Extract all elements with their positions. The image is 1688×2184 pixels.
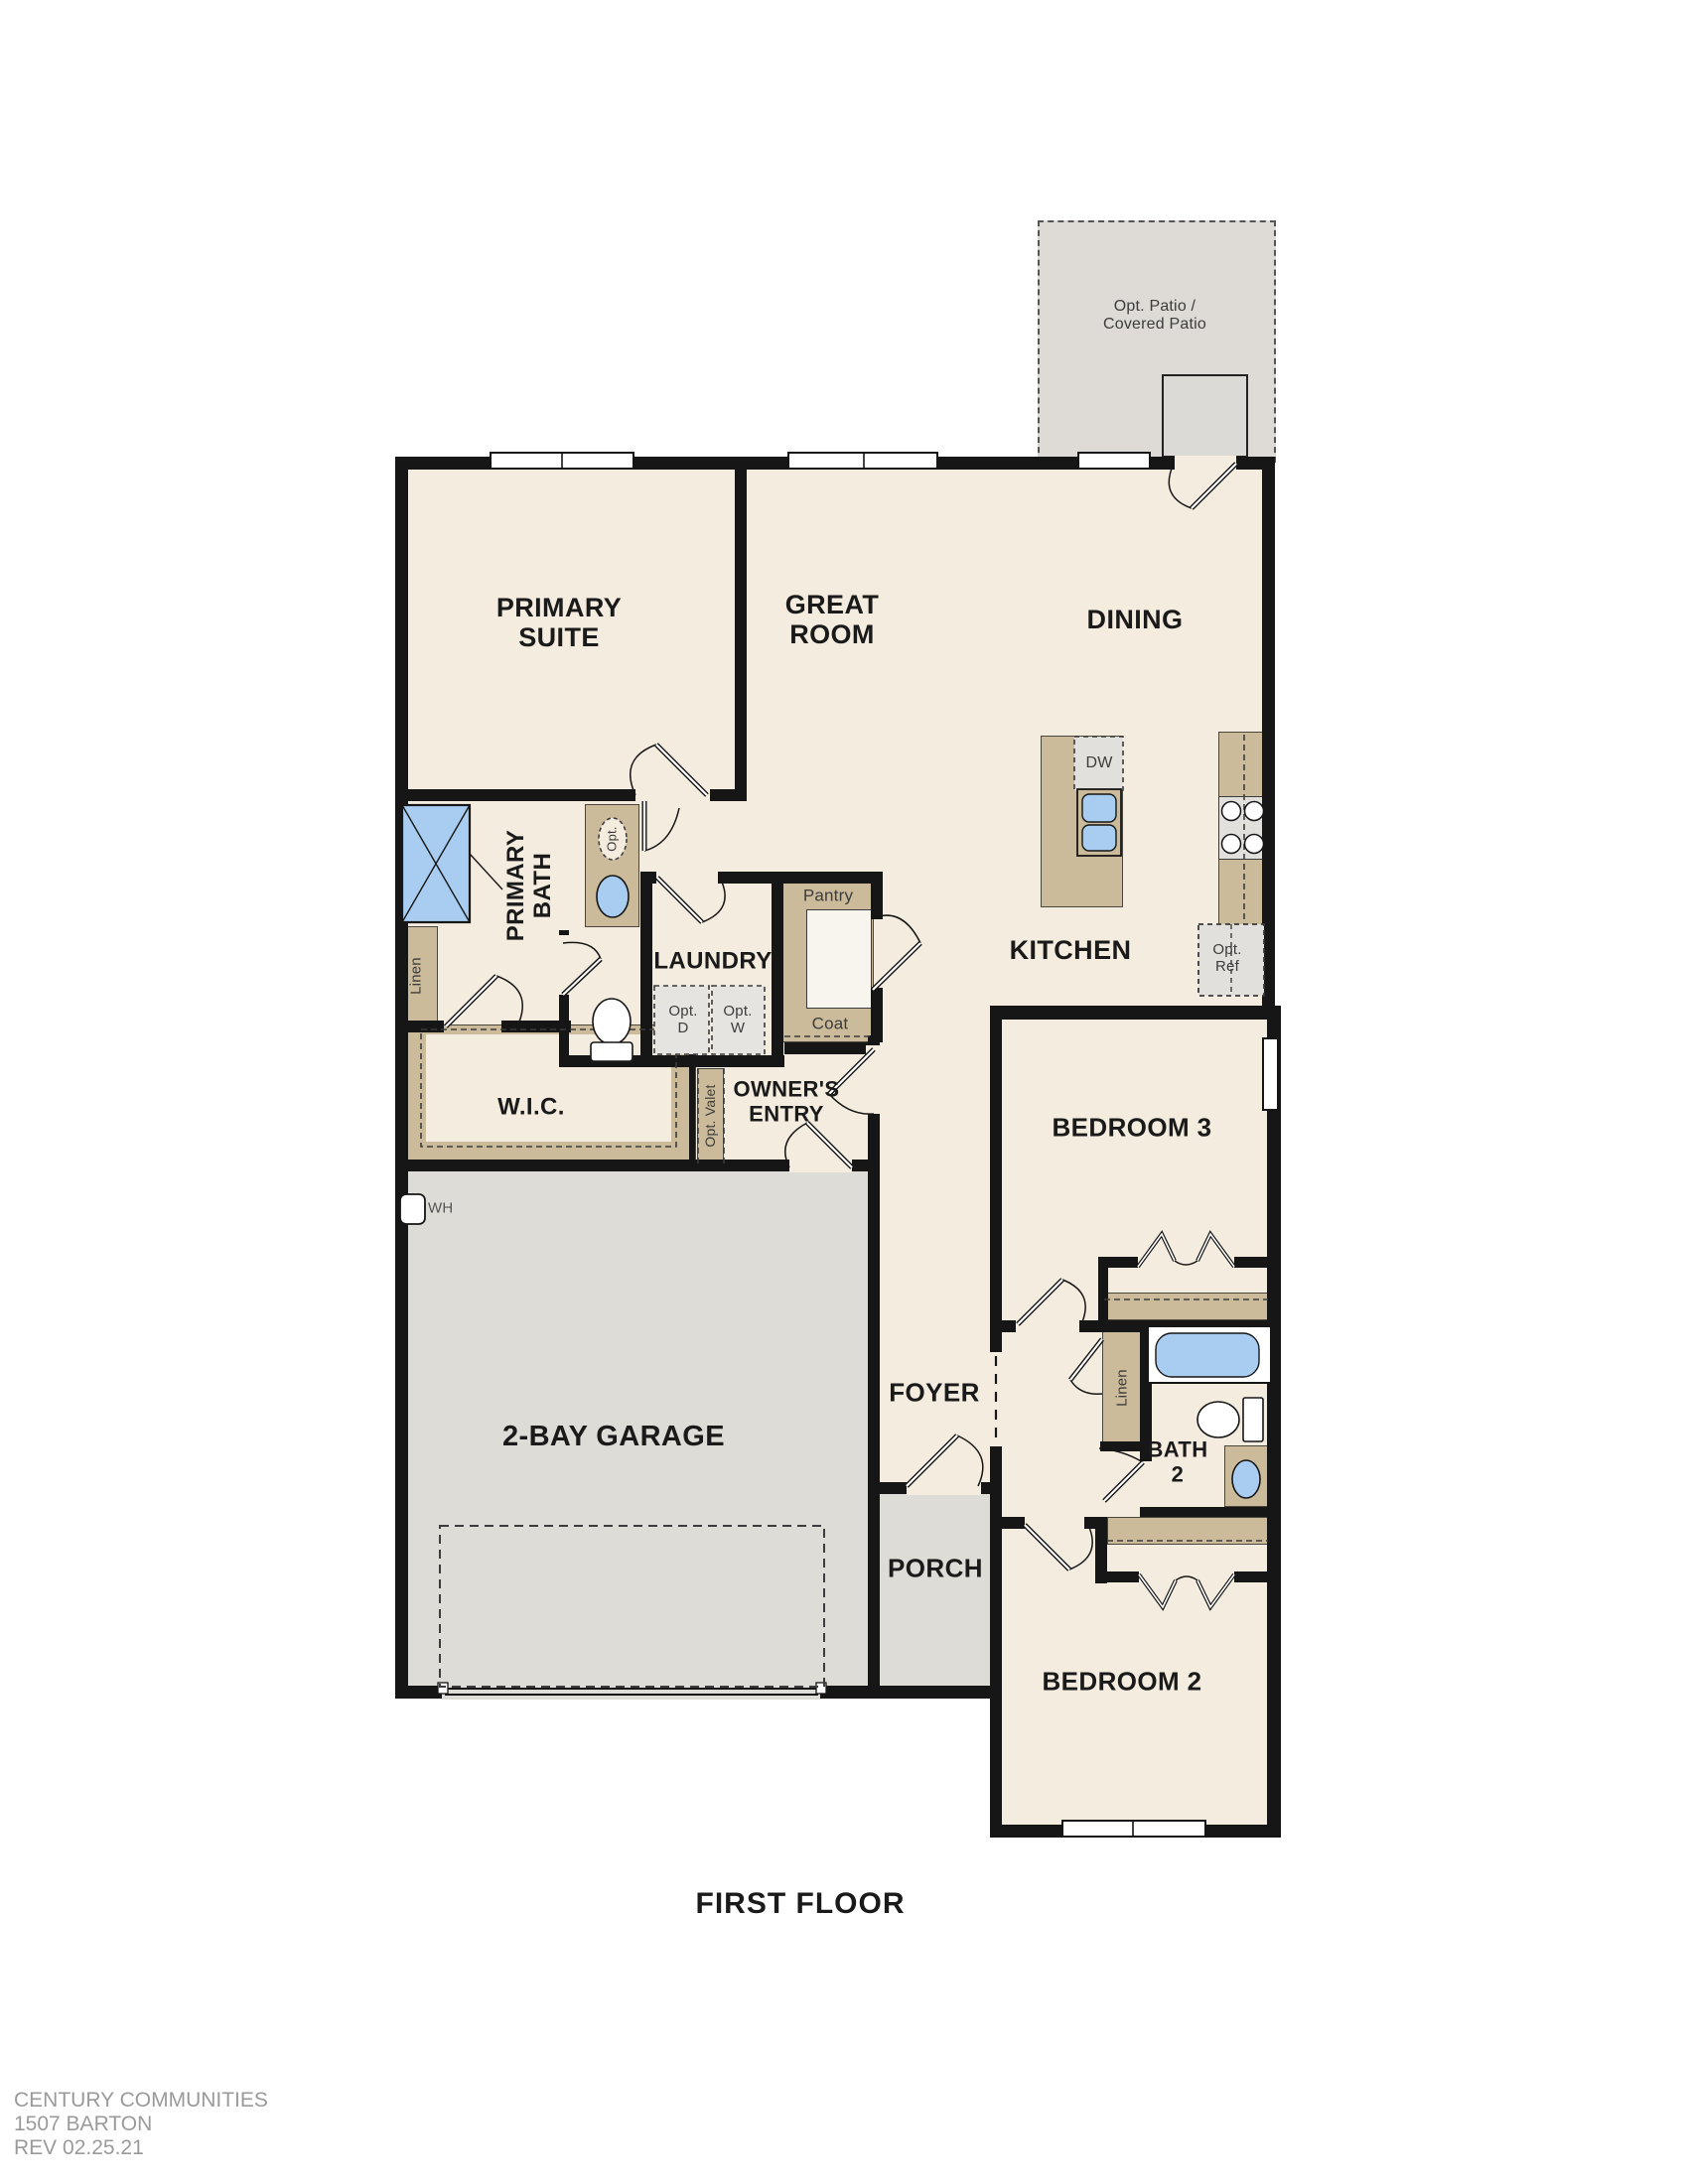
- room-label-great-room: GREAT ROOM: [773, 590, 892, 649]
- door-pantry: [873, 915, 920, 990]
- room-label-porch: PORCH: [846, 1554, 1025, 1582]
- water-heater-label: WH: [428, 1201, 468, 1218]
- footer-company: CENTURY COMMUNITIES: [14, 2089, 268, 2113]
- water-heater: [400, 1194, 425, 1224]
- stove-burners: [1222, 802, 1264, 854]
- shower: [402, 805, 502, 922]
- garage-door: [438, 1526, 826, 1695]
- room-label-dining: DINING: [1036, 605, 1234, 634]
- coat-label: Coat: [780, 1014, 880, 1032]
- linen-bath2-label: Linen: [1115, 1338, 1132, 1437]
- footer-plan: 1507 BARTON: [14, 2113, 268, 2136]
- room-label-primary-bath: PRIMARY BATH: [503, 821, 557, 950]
- room-label-garage: 2-BAY GARAGE: [455, 1421, 773, 1452]
- opt-washer-label: Opt. W: [716, 1004, 760, 1037]
- bath2-sink: [1232, 1460, 1260, 1498]
- door-garage-entry: [785, 1123, 852, 1167]
- opt-fridge-label: Opt. Ref: [1204, 942, 1250, 976]
- bifold-bedroom3-closet: [1138, 1234, 1234, 1267]
- room-label-wic: W.I.C.: [452, 1095, 611, 1122]
- door-water-closet: [563, 942, 601, 995]
- opt-dryer-label: Opt. D: [661, 1004, 705, 1037]
- pantry-label: Pantry: [778, 886, 878, 904]
- footer-block: CENTURY COMMUNITIES 1507 BARTON REV 02.2…: [14, 2089, 268, 2160]
- floor-plan-page: Opt. Patio / Covered Patio PRIMARY SUITE…: [0, 0, 1688, 2184]
- window-mullions: [562, 452, 1133, 1838]
- patio-label: Opt. Patio / Covered Patio: [1097, 298, 1212, 334]
- footer-rev: REV 02.25.21: [14, 2136, 268, 2160]
- kitchen-sink: [1077, 789, 1121, 856]
- door-wic: [446, 976, 522, 1026]
- bath2-toilet: [1197, 1398, 1263, 1441]
- door-primary-suite: [631, 745, 707, 795]
- door-primary-bath: [644, 801, 679, 851]
- opt-fixture-label: Opt.: [606, 819, 621, 859]
- primary-sink: [597, 876, 629, 917]
- room-label-bedroom2: BEDROOM 2: [993, 1667, 1251, 1696]
- door-patio: [1169, 464, 1236, 508]
- room-label-kitchen: KITCHEN: [961, 935, 1180, 965]
- dishwasher-label: DW: [1069, 754, 1129, 772]
- opt-valet-label: Opt. Valet: [703, 1071, 719, 1160]
- linen-primary-label: Linen: [409, 931, 426, 1021]
- door-bath2: [1099, 1448, 1143, 1501]
- room-label-bedroom3: BEDROOM 3: [1003, 1113, 1261, 1142]
- door-front: [907, 1435, 983, 1486]
- bath2-tub: [1148, 1326, 1271, 1383]
- room-label-laundry: LAUNDRY: [614, 949, 812, 976]
- sheet-title: FIRST FLOOR: [641, 1887, 959, 1921]
- bifold-bedroom2-closet: [1139, 1574, 1234, 1607]
- door-bedroom2: [1025, 1525, 1092, 1570]
- room-label-primary-suite: PRIMARY SUITE: [475, 593, 643, 652]
- primary-toilet: [591, 999, 633, 1061]
- room-label-foyer: FOYER: [845, 1378, 1024, 1407]
- room-label-bath2: BATH 2: [1138, 1437, 1217, 1486]
- door-laundry: [657, 878, 725, 922]
- door-linen: [1070, 1339, 1102, 1394]
- room-label-owners-entry: OWNER'S ENTRY: [722, 1077, 851, 1126]
- door-bedroom3: [1018, 1280, 1085, 1324]
